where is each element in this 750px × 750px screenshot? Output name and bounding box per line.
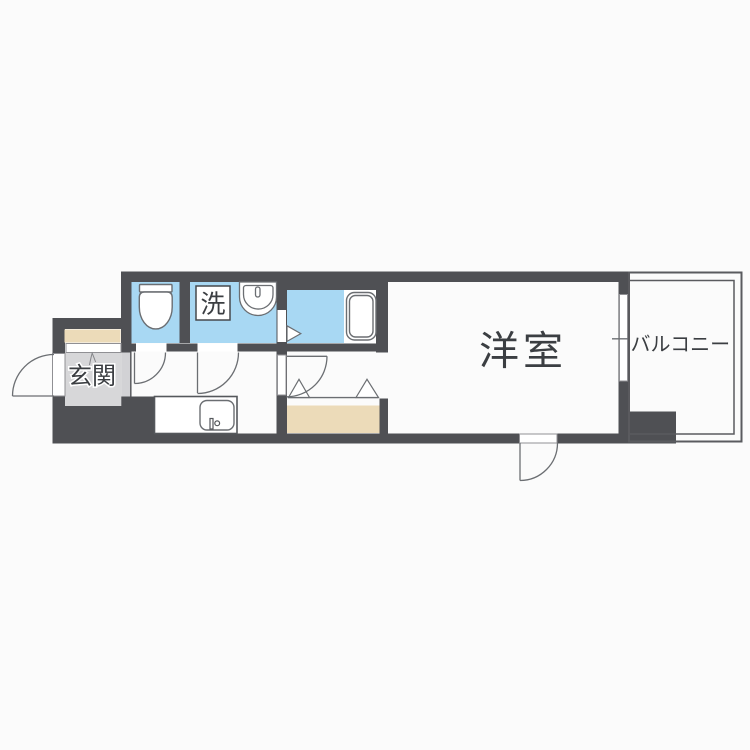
svg-text:玄関: 玄関 <box>68 363 116 390</box>
svg-text:バルコニー: バルコニー <box>631 334 731 356</box>
svg-text:洗: 洗 <box>200 291 225 319</box>
svg-text:洋室: 洋室 <box>479 330 567 374</box>
